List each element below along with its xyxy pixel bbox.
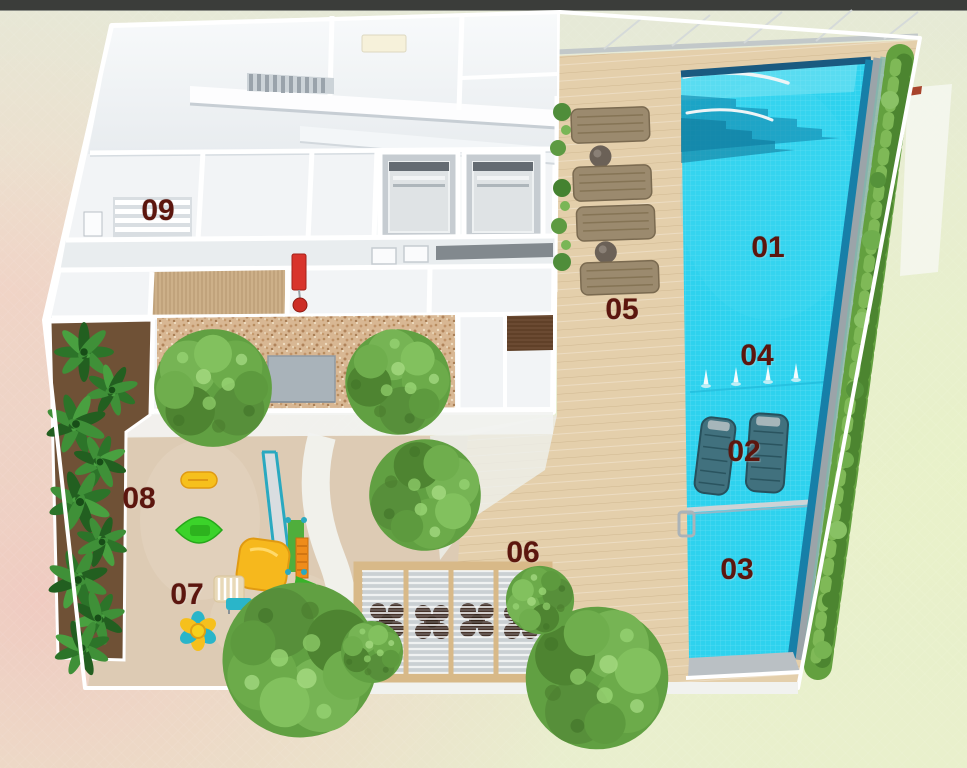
plan-artwork [0, 0, 967, 768]
area-label-03-kids-pool: 03 [720, 553, 753, 587]
sun-loungers [550, 96, 659, 295]
area-label-04-fountains: 04 [740, 339, 773, 373]
spring-rider [181, 472, 217, 488]
floorplan-canvas: 01 02 03 04 05 06 07 08 09 [0, 0, 967, 768]
area-label-08-garden: 08 [122, 482, 155, 516]
area-label-07-playground: 07 [170, 578, 203, 612]
fire-hose-cabinet [292, 254, 307, 312]
dark-wood-room [505, 315, 553, 351]
courtyard-table [268, 356, 335, 402]
door [84, 212, 102, 236]
area-label-01-pool: 01 [751, 231, 784, 265]
wood-floor-room [150, 270, 285, 318]
skylight [362, 35, 406, 52]
area-label-02-wet-loungers: 02 [727, 435, 760, 469]
elevator-shafts [380, 152, 543, 242]
area-label-05-sun-deck: 05 [605, 293, 638, 327]
area-label-09-indoor-room: 09 [141, 194, 174, 228]
area-label-06-pergola: 06 [506, 536, 539, 570]
